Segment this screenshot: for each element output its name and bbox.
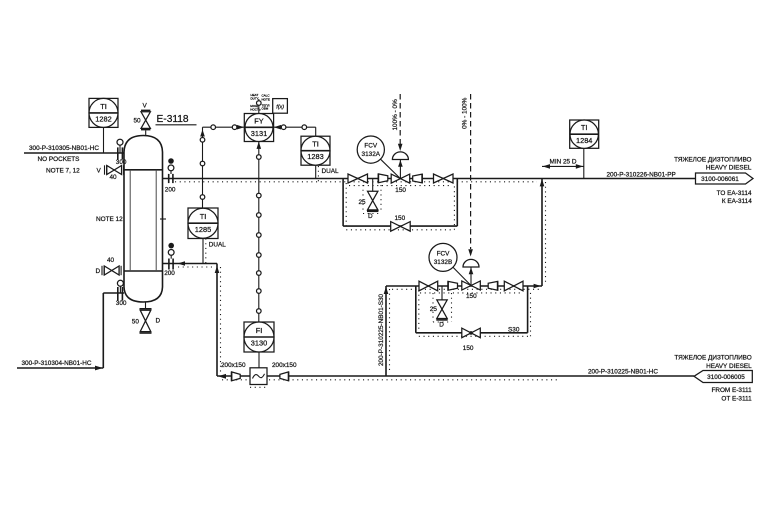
svg-text:DUTY: DUTY: [251, 96, 259, 100]
svg-text:FCV: FCV: [437, 250, 451, 257]
svg-text:1283: 1283: [307, 152, 323, 161]
svg-text:1282: 1282: [95, 115, 111, 124]
svg-text:200-P-310225-NB01-S30: 200-P-310225-NB01-S30: [378, 293, 385, 366]
svg-text:f(x): f(x): [276, 104, 284, 110]
svg-text:300: 300: [116, 300, 127, 307]
svg-text:E-3118: E-3118: [157, 114, 189, 125]
svg-text:HEAVY DIESEL: HEAVY DIESEL: [706, 165, 752, 172]
svg-text:40: 40: [110, 174, 118, 181]
svg-text:0% - 100%: 0% - 100%: [462, 97, 469, 129]
svg-text:ТЯЖЕЛОЕ ДИЗТОПЛИВО: ТЯЖЕЛОЕ ДИЗТОПЛИВО: [674, 157, 751, 164]
svg-text:D: D: [439, 321, 444, 328]
svg-text:3132B: 3132B: [434, 259, 452, 266]
svg-text:3130: 3130: [251, 339, 267, 348]
svg-text:300-P-310304-NB01-HC: 300-P-310304-NB01-HC: [22, 360, 92, 367]
svg-text:3132A: 3132A: [362, 151, 381, 158]
svg-text:1284: 1284: [576, 136, 592, 145]
svg-text:NO POCKETS: NO POCKETS: [38, 156, 80, 163]
svg-text:1285: 1285: [195, 225, 211, 234]
svg-text:200x150: 200x150: [221, 362, 246, 369]
svg-text:ОБМ: ОБМ: [262, 107, 269, 111]
svg-text:3100-006061: 3100-006061: [701, 176, 739, 183]
svg-text:150: 150: [466, 293, 477, 300]
svg-text:NOTE: NOTE: [262, 97, 270, 101]
svg-text:V: V: [97, 168, 102, 175]
svg-text:3131: 3131: [251, 129, 267, 138]
svg-text:FI: FI: [256, 326, 263, 335]
svg-text:200-P-310225-NB01-HC: 200-P-310225-NB01-HC: [588, 368, 658, 375]
svg-text:D: D: [96, 268, 101, 275]
svg-text:25: 25: [430, 306, 438, 313]
svg-text:200x150: 200x150: [272, 362, 297, 369]
svg-text:150: 150: [463, 345, 474, 352]
svg-text:TI: TI: [581, 123, 588, 132]
svg-text:50: 50: [132, 319, 140, 326]
svg-text:V: V: [143, 103, 148, 110]
svg-text:HEAVY DIESEL: HEAVY DIESEL: [706, 363, 752, 370]
svg-text:3100-006005: 3100-006005: [707, 374, 745, 381]
svg-text:К EA-3114: К EA-3114: [722, 198, 752, 205]
svg-text:ОТ E-3111: ОТ E-3111: [721, 395, 752, 402]
svg-text:100% - 0%: 100% - 0%: [392, 99, 399, 131]
svg-text:150: 150: [395, 215, 406, 222]
svg-text:300-P-310305-NB01-HC: 300-P-310305-NB01-HC: [29, 145, 99, 152]
svg-text:D: D: [156, 318, 161, 325]
svg-text:FY: FY: [254, 116, 264, 125]
svg-text:150: 150: [395, 187, 406, 194]
svg-text:TI: TI: [100, 102, 107, 111]
svg-text:TO EA-3114: TO EA-3114: [717, 190, 752, 197]
svg-text:DUAL: DUAL: [209, 242, 226, 249]
svg-text:S30: S30: [508, 326, 520, 333]
svg-text:НОСТЬ: НОСТЬ: [250, 107, 260, 111]
svg-text:TI: TI: [312, 140, 319, 149]
svg-text:DUAL: DUAL: [322, 168, 339, 175]
svg-text:50: 50: [134, 118, 142, 125]
svg-text:200-P-310226-NB01-PP: 200-P-310226-NB01-PP: [607, 171, 676, 178]
svg-text:TI: TI: [200, 212, 207, 221]
svg-text:NOTE 12: NOTE 12: [96, 216, 123, 223]
svg-text:ТЯЖЕЛОЕ ДИЗТОПЛИВО: ТЯЖЕЛОЕ ДИЗТОПЛИВО: [674, 355, 751, 362]
svg-text:MIN 25 D: MIN 25 D: [550, 159, 577, 166]
svg-text:NOTE 7, 12: NOTE 7, 12: [46, 167, 80, 174]
svg-text:200: 200: [165, 187, 176, 194]
svg-text:FCV: FCV: [364, 143, 378, 150]
svg-text:25: 25: [359, 199, 367, 206]
svg-text:FROM E-3111: FROM E-3111: [711, 387, 752, 394]
svg-text:40: 40: [107, 257, 115, 264]
svg-text:200: 200: [164, 270, 175, 277]
